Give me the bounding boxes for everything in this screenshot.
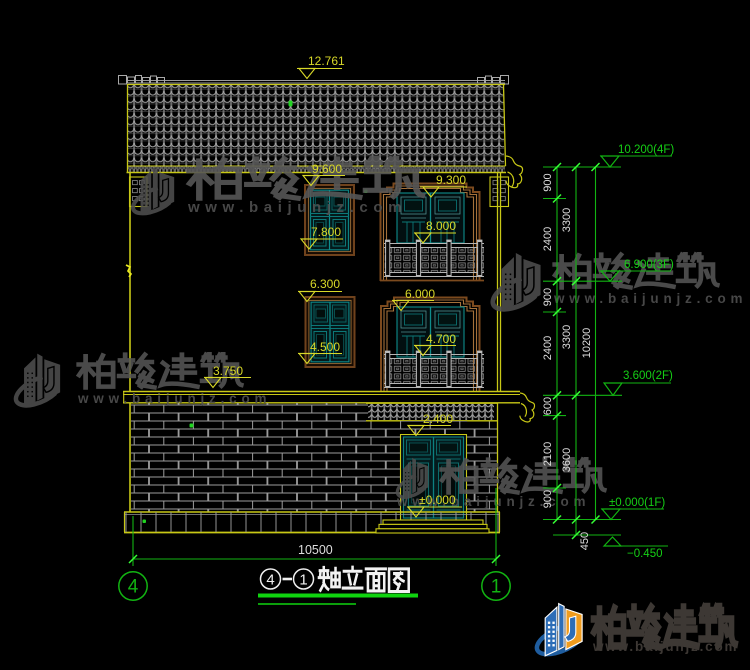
svg-text:4.700: 4.700	[426, 332, 456, 346]
svg-text:10500: 10500	[298, 543, 333, 557]
svg-text:2400: 2400	[542, 336, 554, 360]
svg-text:7.800: 7.800	[311, 225, 341, 239]
svg-text:6.300: 6.300	[310, 277, 340, 291]
svg-text:3.600(2F): 3.600(2F)	[623, 370, 673, 382]
svg-text:3300: 3300	[561, 325, 573, 349]
svg-text:9.600: 9.600	[312, 162, 342, 176]
svg-text:−0.450: −0.450	[627, 548, 663, 560]
svg-text:±0.000(1F): ±0.000(1F)	[609, 497, 665, 509]
svg-text:www.baijunjz.com: www.baijunjz.com	[553, 291, 747, 306]
svg-text:3.750: 3.750	[213, 364, 243, 378]
svg-text:6.000: 6.000	[405, 287, 435, 301]
svg-text:3300: 3300	[561, 208, 573, 232]
svg-text:2.400: 2.400	[423, 412, 453, 426]
svg-text:12.761: 12.761	[308, 54, 345, 68]
svg-text:2100: 2100	[542, 442, 554, 466]
svg-text:450: 450	[579, 532, 591, 550]
svg-text:4: 4	[128, 577, 139, 598]
svg-text:900: 900	[542, 288, 554, 306]
svg-text:www.baijunjz.com: www.baijunjz.com	[592, 639, 738, 654]
svg-text:1: 1	[299, 572, 307, 589]
svg-text:3600: 3600	[561, 448, 573, 472]
svg-text:10200: 10200	[581, 328, 593, 359]
svg-text:4: 4	[266, 572, 274, 589]
svg-text:6.900(3F): 6.900(3F)	[624, 259, 674, 271]
svg-text:4.500: 4.500	[310, 340, 340, 354]
svg-text:900: 900	[542, 173, 554, 191]
svg-text:www.baijunjz.com: www.baijunjz.com	[77, 391, 271, 406]
svg-text:900: 900	[542, 490, 554, 508]
svg-text:www.baijunjz.com: www.baijunjz.com	[187, 199, 407, 216]
svg-text:600: 600	[542, 397, 554, 415]
svg-text:8.000: 8.000	[426, 219, 456, 233]
svg-text:9.300: 9.300	[436, 173, 466, 187]
svg-text:2400: 2400	[542, 227, 554, 251]
svg-text:1: 1	[491, 577, 502, 598]
svg-text:±0.000: ±0.000	[419, 493, 456, 507]
svg-text:10.200(4F): 10.200(4F)	[618, 144, 674, 156]
